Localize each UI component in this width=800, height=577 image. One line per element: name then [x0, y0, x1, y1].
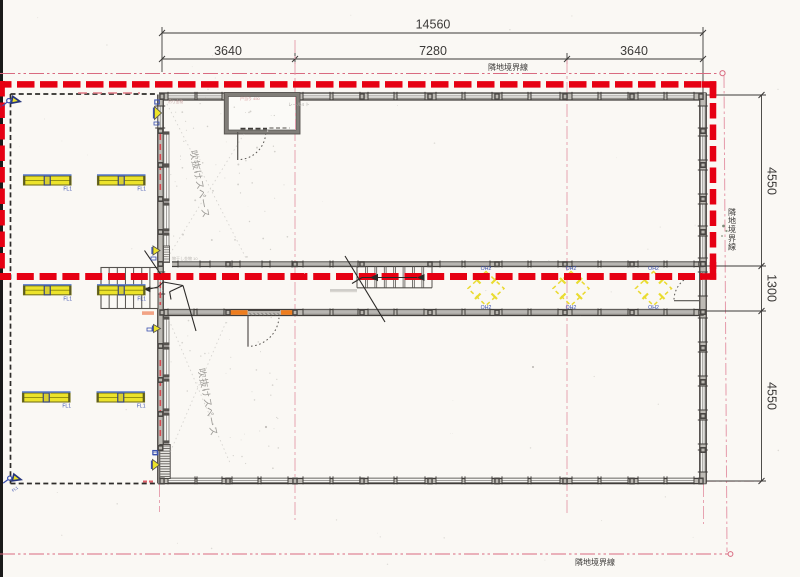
svg-text:⼾当り 450: ⼾当り 450	[240, 95, 261, 101]
svg-text:4550: 4550	[765, 167, 779, 195]
svg-text:隣地境界線: 隣地境界線	[488, 62, 528, 72]
svg-text:FL1: FL1	[137, 296, 146, 302]
svg-text:OH2: OH2	[566, 266, 577, 272]
svg-text:. .: . .	[450, 430, 453, 435]
svg-text:FL1: FL1	[63, 296, 72, 302]
svg-text:物干し金物 10: 物干し金物 10	[172, 255, 198, 261]
svg-text:7280: 7280	[419, 44, 447, 58]
svg-text:14560: 14560	[416, 18, 451, 32]
svg-text:レール4 ト: レール4 ト	[288, 102, 310, 107]
svg-text:隣地境界線: 隣地境界線	[575, 557, 615, 567]
svg-text:3640: 3640	[620, 44, 648, 58]
svg-text:吊り⾦物: 吊り⾦物	[168, 99, 183, 104]
svg-text:OH2: OH2	[648, 266, 659, 272]
svg-text:FL1: FL1	[63, 187, 72, 193]
svg-text:隣地境界線: 隣地境界線	[728, 207, 736, 251]
svg-text:3640: 3640	[214, 44, 242, 58]
svg-text:OH2: OH2	[481, 266, 492, 272]
svg-text:OH2: OH2	[481, 305, 492, 311]
svg-text:OH2: OH2	[648, 305, 659, 311]
svg-text:FL1: FL1	[137, 187, 146, 193]
svg-text:1300: 1300	[765, 274, 779, 302]
svg-text:FL1: FL1	[62, 404, 71, 410]
svg-text:OH2: OH2	[566, 305, 577, 311]
svg-text:FL1: FL1	[137, 404, 146, 410]
svg-text:4550: 4550	[765, 382, 779, 410]
